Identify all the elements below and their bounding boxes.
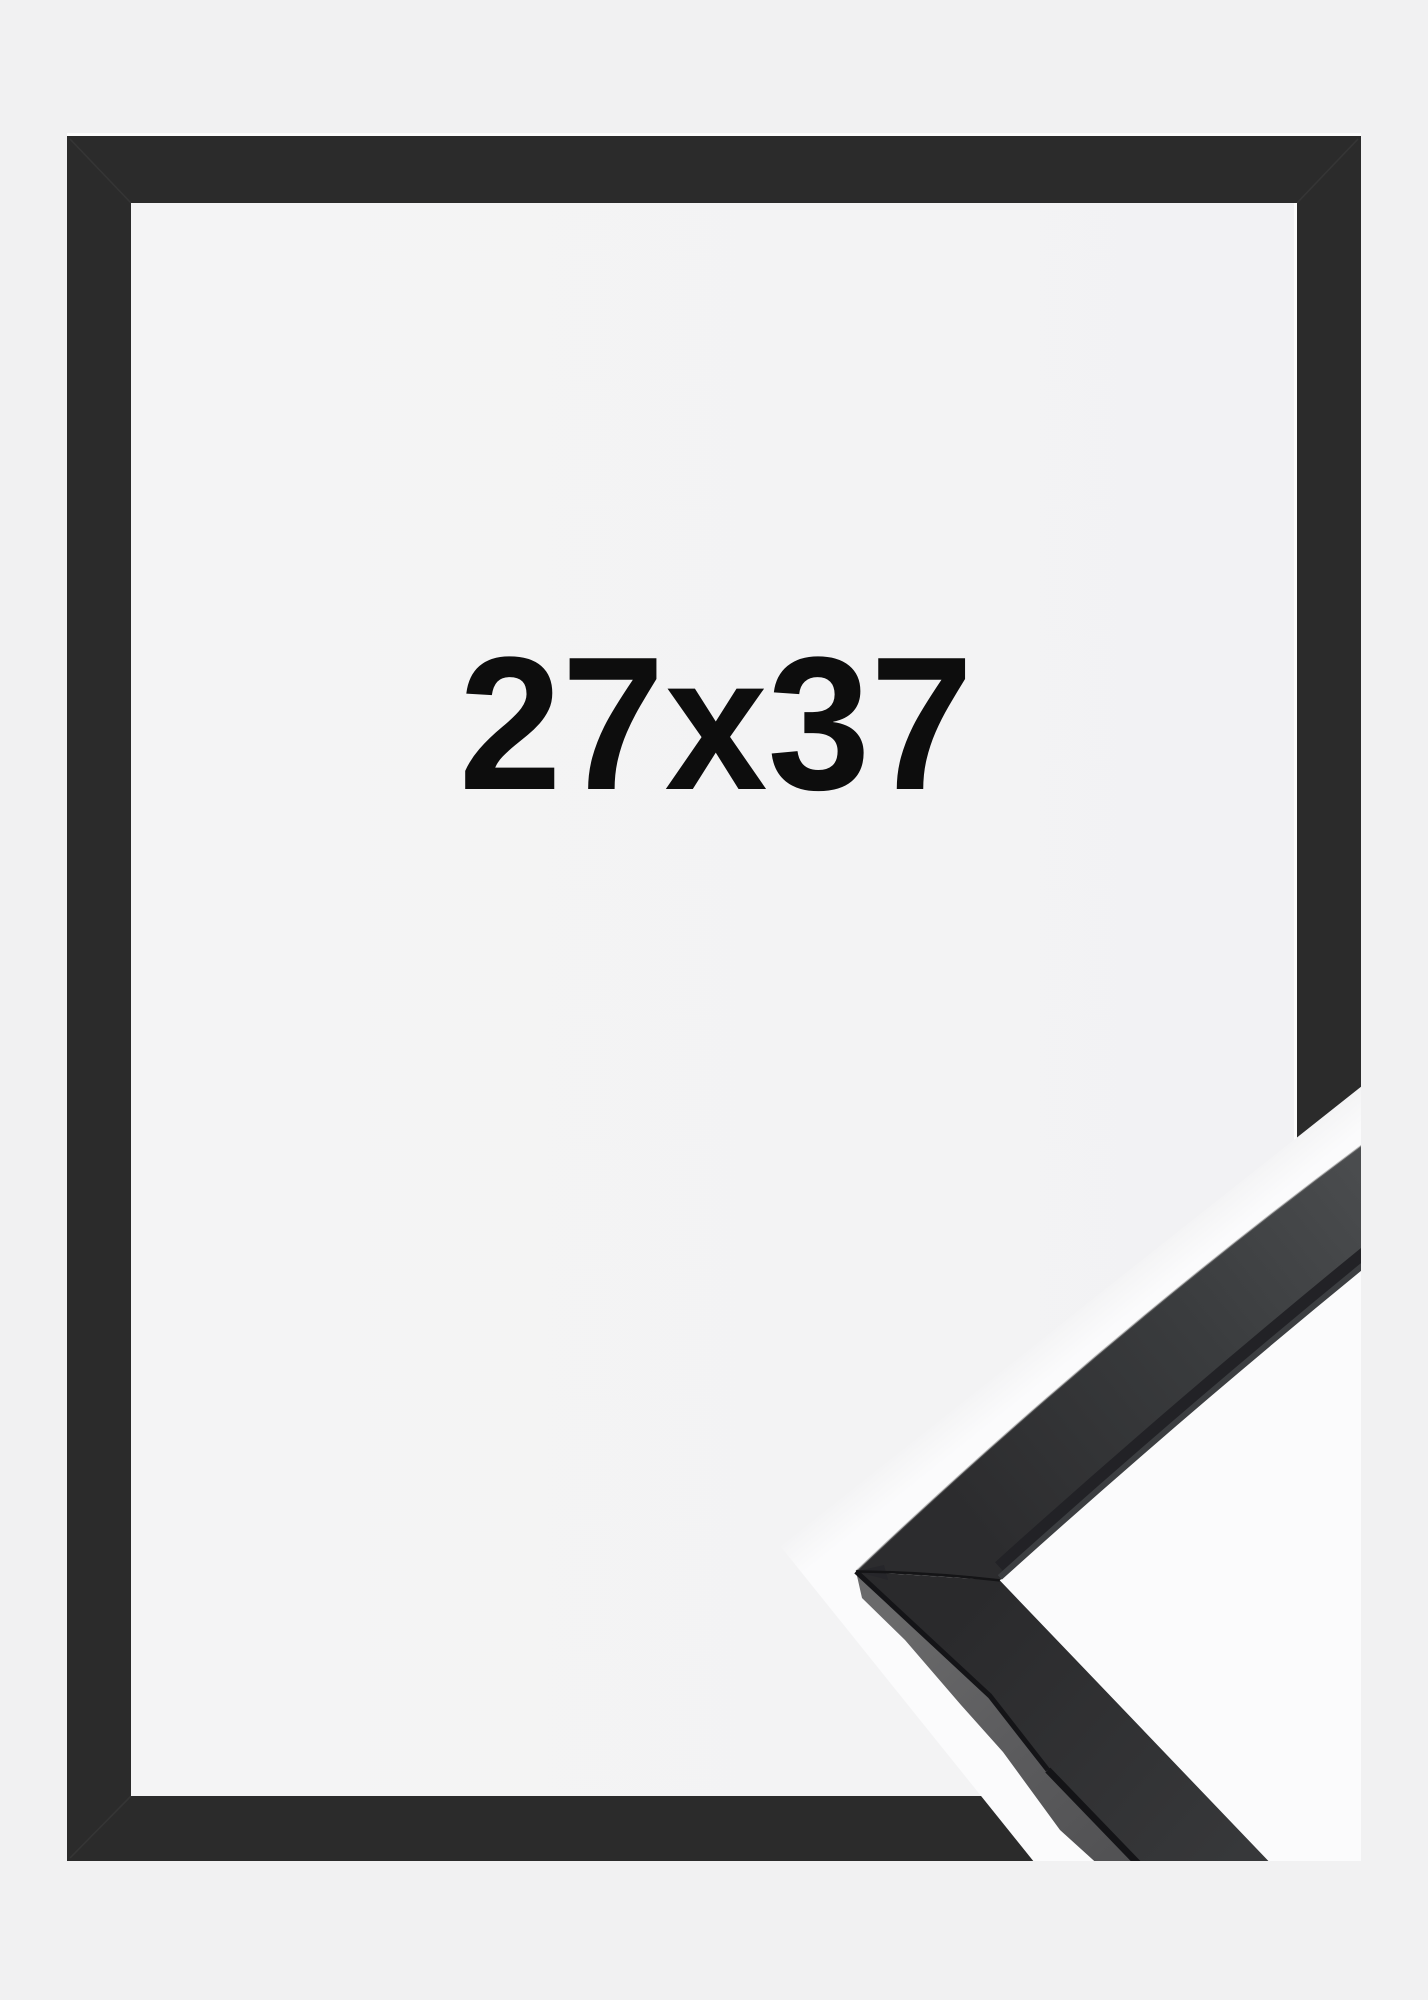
svg-text:27x37: 27x37: [459, 618, 973, 830]
